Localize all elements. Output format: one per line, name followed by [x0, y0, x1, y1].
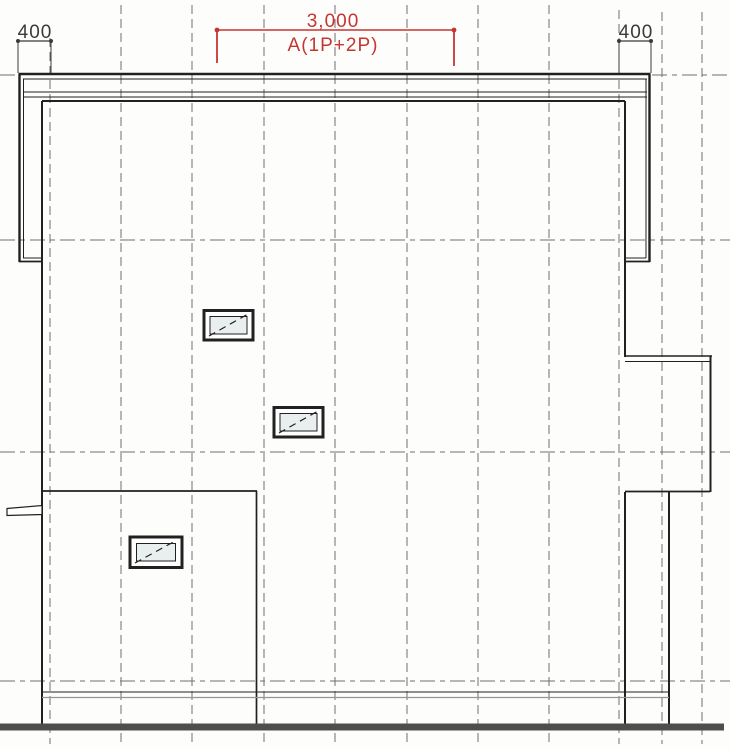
dim-label-top-left: 400 [18, 22, 53, 43]
grid-lines [0, 5, 730, 744]
dimension-top-left: 400 [16, 22, 53, 73]
dim-value-top-center: 3,000 [307, 11, 360, 32]
elevation-drawing-page: 400 400 3,000 A(1P+2P) [0, 0, 730, 749]
window-middle [274, 408, 323, 438]
main-wall-outline [42, 101, 625, 724]
elevation-drawing-canvas: 400 400 3,000 A(1P+2P) [0, 0, 730, 749]
canopy-pipe [7, 506, 42, 516]
window-upper [204, 311, 253, 341]
dim-span-label-top-center: A(1P+2P) [288, 35, 379, 56]
right-bay [625, 356, 712, 492]
dimension-top-center: 3,000 A(1P+2P) [215, 11, 457, 66]
window-lower [130, 537, 182, 568]
ground-line [0, 724, 724, 731]
foundation-lines [42, 692, 669, 698]
dimension-top-right: 400 [617, 22, 653, 73]
left-annex [42, 491, 257, 724]
dim-label-top-right: 400 [619, 22, 654, 43]
